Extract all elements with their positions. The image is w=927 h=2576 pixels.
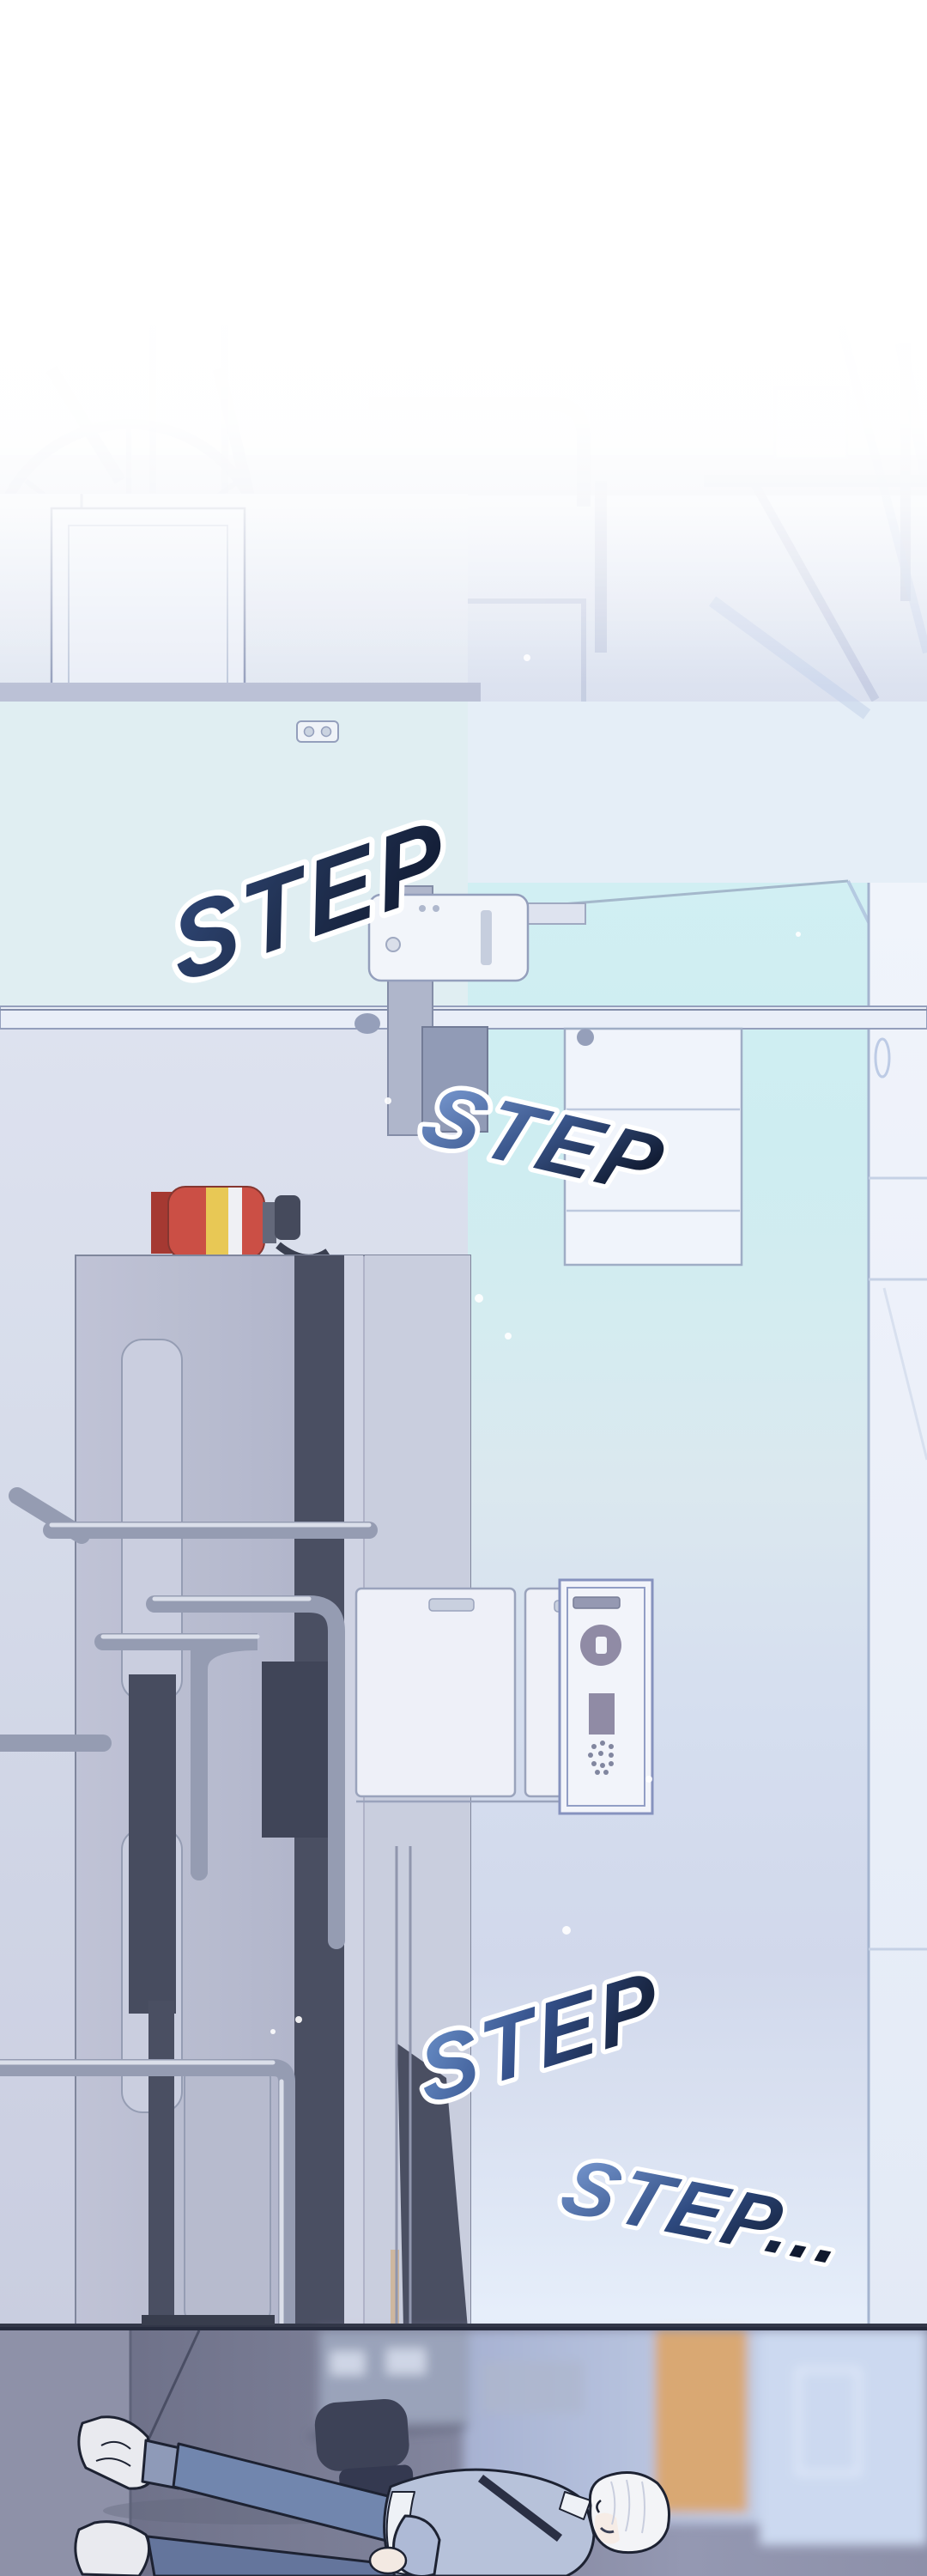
shoe-back [76,2522,149,2576]
tan-door [655,2330,748,2512]
lower-corridor [0,2315,927,2576]
hand [370,2548,406,2573]
webtoon-panel: STEP STEP STEP STEP... [0,0,927,2576]
scene-artwork: STEP STEP STEP STEP... [0,0,927,2576]
